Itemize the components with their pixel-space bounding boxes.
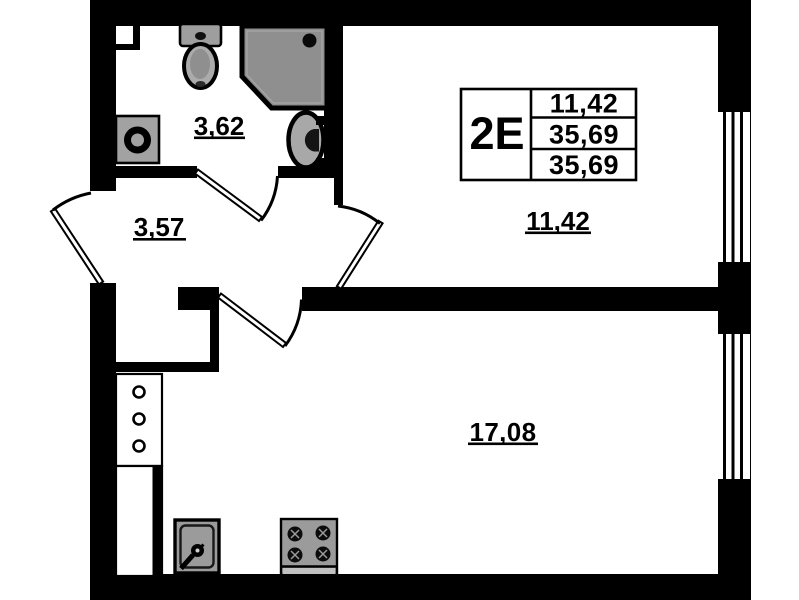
svg-text:3,57: 3,57 <box>134 212 185 242</box>
svg-text:35,69: 35,69 <box>549 120 619 150</box>
svg-text:11,42: 11,42 <box>550 89 619 119</box>
svg-text:35,69: 35,69 <box>549 150 619 180</box>
svg-text:2E: 2E <box>469 108 524 159</box>
